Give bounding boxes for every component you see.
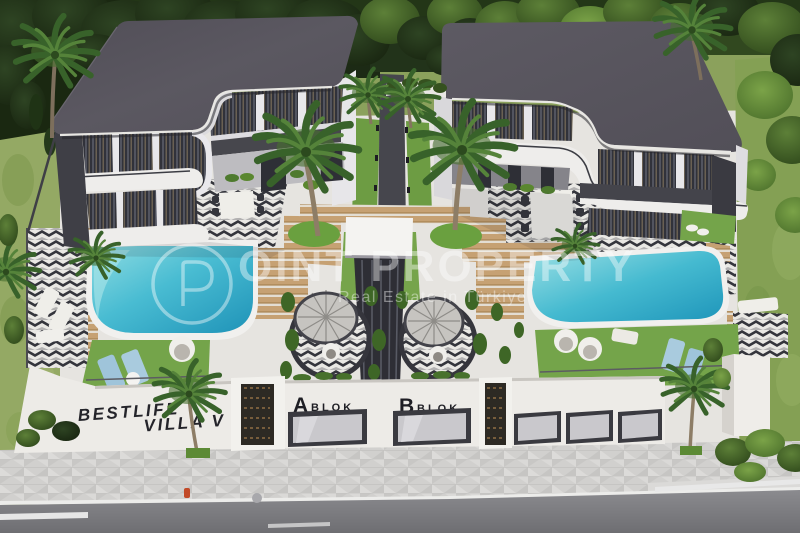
svg-text:Real Estate in Türkiye: Real Estate in Türkiye [338,289,527,306]
svg-text:OINT PROPERTY: OINT PROPERTY [238,242,636,291]
